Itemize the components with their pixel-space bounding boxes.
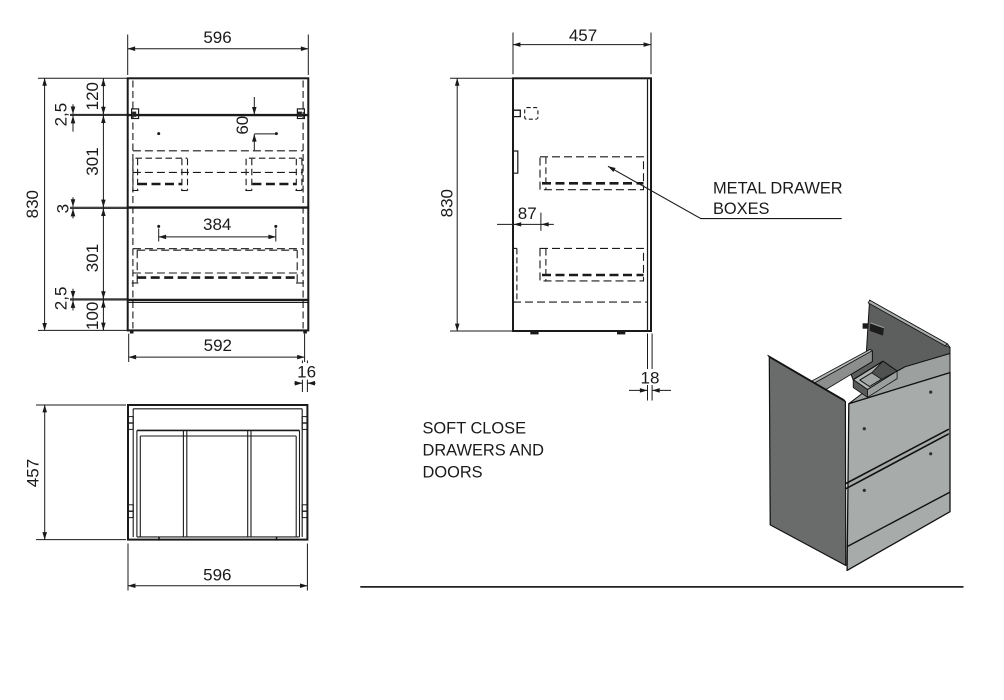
svg-text:830: 830 bbox=[23, 190, 42, 218]
svg-text:BOXES: BOXES bbox=[713, 200, 770, 218]
svg-text:DRAWERS AND: DRAWERS AND bbox=[423, 442, 545, 460]
svg-text:METAL DRAWER: METAL DRAWER bbox=[713, 179, 843, 197]
svg-text:301: 301 bbox=[83, 147, 102, 175]
svg-text:592: 592 bbox=[204, 336, 232, 355]
svg-text:2,5: 2,5 bbox=[51, 103, 70, 127]
svg-text:87: 87 bbox=[518, 204, 537, 223]
svg-text:596: 596 bbox=[203, 28, 231, 47]
svg-text:384: 384 bbox=[203, 215, 231, 234]
svg-text:3: 3 bbox=[53, 204, 72, 213]
svg-text:SOFT CLOSE: SOFT CLOSE bbox=[423, 419, 527, 437]
svg-text:16: 16 bbox=[297, 363, 316, 382]
svg-text:18: 18 bbox=[641, 368, 660, 387]
svg-text:DOORS: DOORS bbox=[423, 463, 483, 481]
svg-text:2,5: 2,5 bbox=[51, 287, 70, 311]
svg-text:596: 596 bbox=[203, 565, 231, 584]
svg-text:120: 120 bbox=[83, 82, 102, 110]
svg-text:60: 60 bbox=[233, 116, 252, 135]
svg-text:457: 457 bbox=[24, 459, 43, 487]
svg-text:100: 100 bbox=[83, 302, 102, 330]
svg-text:830: 830 bbox=[437, 189, 456, 217]
svg-text:457: 457 bbox=[569, 26, 597, 45]
svg-text:301: 301 bbox=[83, 244, 102, 272]
